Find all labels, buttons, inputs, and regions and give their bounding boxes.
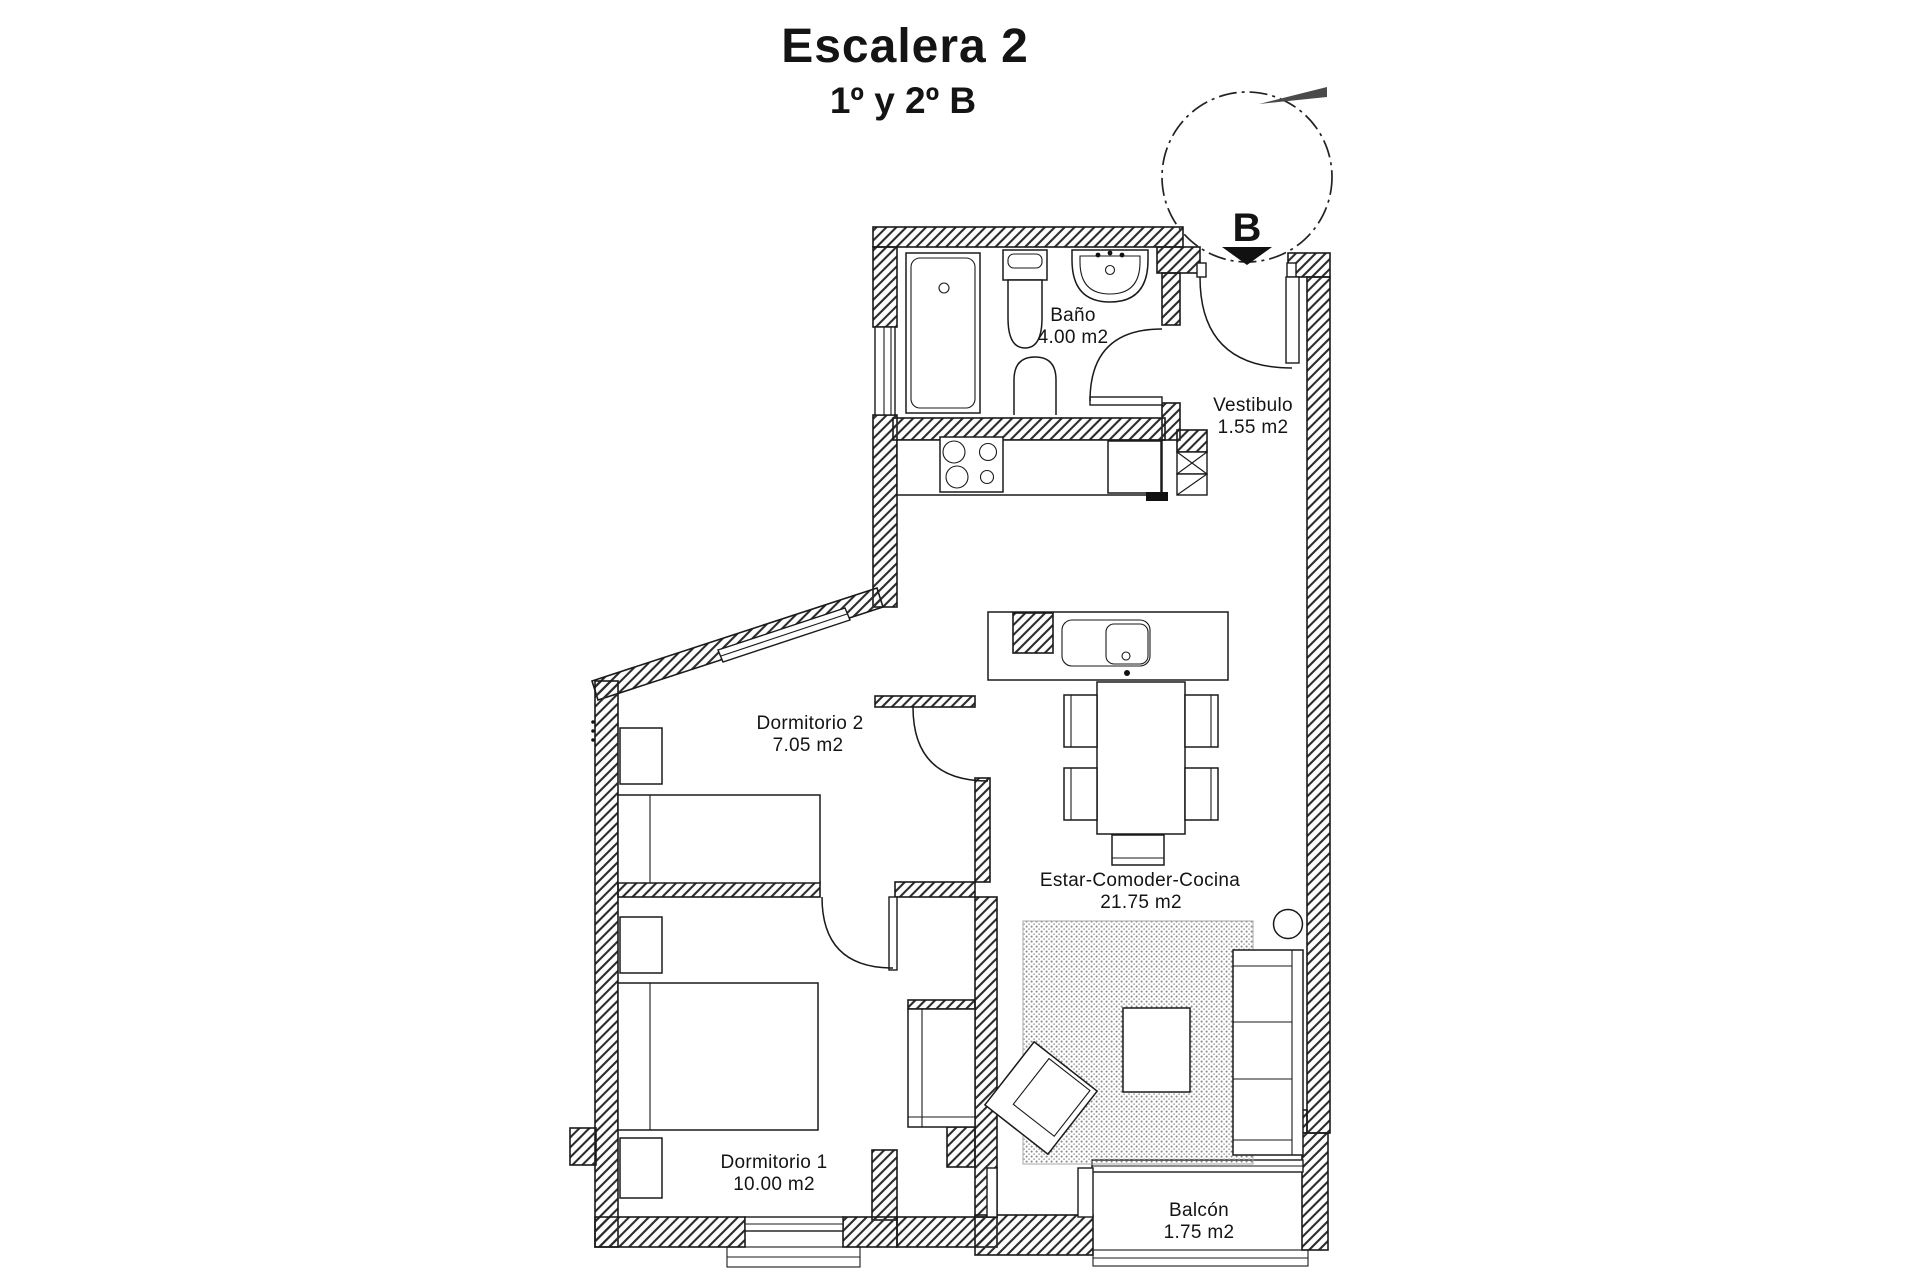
bathtub-icon xyxy=(906,253,980,413)
sofa-icon xyxy=(1233,950,1303,1155)
kitchen-appliance xyxy=(1108,441,1168,501)
entrance-arrow-icon xyxy=(1222,247,1272,265)
north-wedge-icon xyxy=(1259,87,1327,104)
kitchen-island xyxy=(988,612,1228,680)
bedroom1-door xyxy=(822,897,897,970)
side-table-icon xyxy=(1274,910,1303,939)
stair-entrance-label: B xyxy=(1233,206,1262,250)
floor-plan-drawing: Escalera 2 1º y 2º B B xyxy=(0,0,1920,1280)
coffee-table xyxy=(1123,1008,1190,1092)
room-label-vestibulo: Vestibulo xyxy=(1213,395,1293,416)
window-balcony xyxy=(987,1160,1303,1217)
room-label-bano: Baño xyxy=(1050,305,1096,326)
room-area-dormitorio2: 7.05 m2 xyxy=(773,735,844,756)
room-label-balcon: Balcón xyxy=(1169,1200,1229,1221)
page-title: Escalera 2 xyxy=(781,20,1029,73)
window-left xyxy=(875,327,895,415)
room-area-dormitorio1: 10.00 m2 xyxy=(733,1174,815,1195)
dining-table xyxy=(1097,682,1185,834)
room-label-estar: Estar-Comoder-Cocina xyxy=(1040,870,1240,891)
balcony-railing xyxy=(1093,1250,1308,1266)
closet xyxy=(908,1009,975,1127)
room-area-estar: 21.75 m2 xyxy=(1100,892,1182,913)
room-area-vestibulo: 1.55 m2 xyxy=(1218,417,1289,438)
floor-plan-page: Escalera 2 1º y 2º B B xyxy=(0,0,1920,1280)
room-area-bano: 4.00 m2 xyxy=(1038,327,1109,348)
duct-shaft-icon xyxy=(1177,430,1207,495)
window-bedroom1 xyxy=(727,1217,860,1267)
stove-icon xyxy=(940,437,1003,492)
entrance-door xyxy=(1197,263,1299,368)
bidet-icon xyxy=(1014,357,1056,415)
room-area-balcon: 1.75 m2 xyxy=(1164,1222,1235,1243)
room-label-dormitorio1: Dormitorio 1 xyxy=(720,1152,827,1173)
bedroom2-door xyxy=(913,707,988,781)
sink-icon xyxy=(1072,250,1148,302)
room-label-dormitorio2: Dormitorio 2 xyxy=(756,713,863,734)
page-subtitle: 1º y 2º B xyxy=(830,80,976,121)
